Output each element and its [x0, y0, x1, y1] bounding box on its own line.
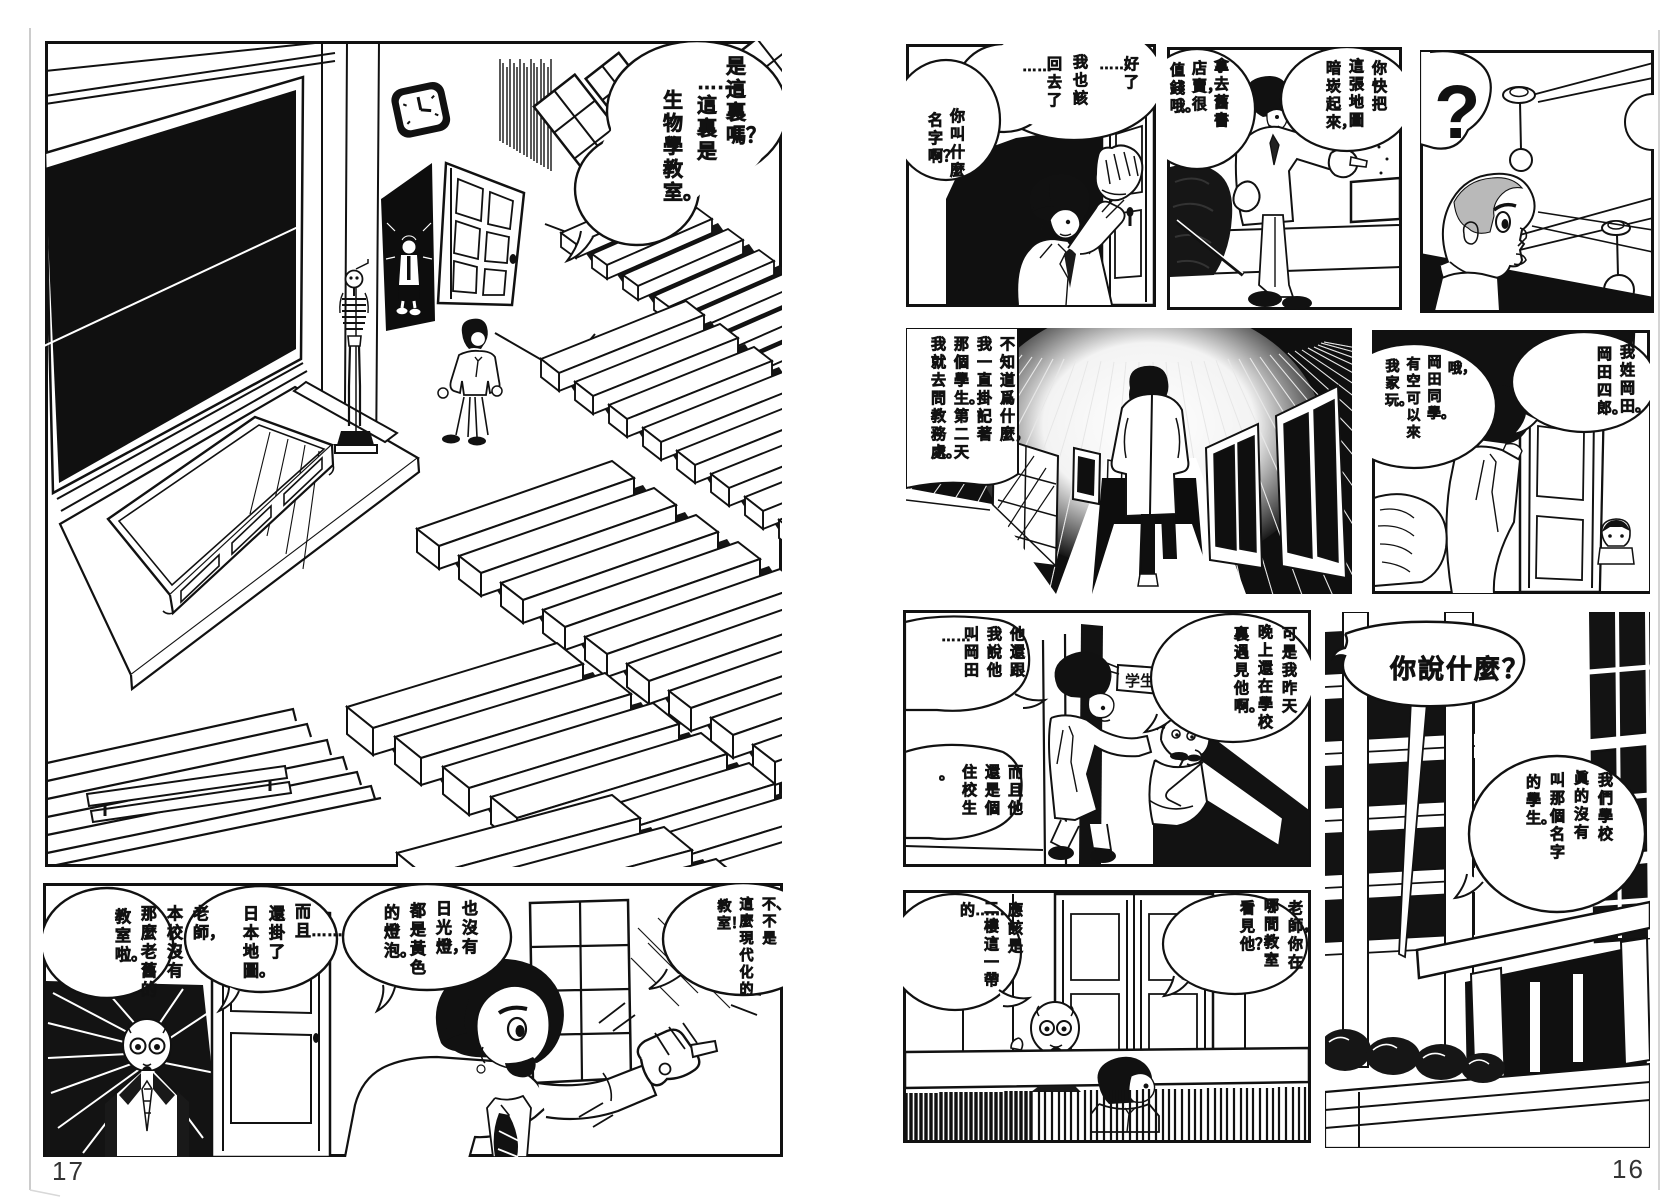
- svg-text:?: ?: [1434, 70, 1480, 155]
